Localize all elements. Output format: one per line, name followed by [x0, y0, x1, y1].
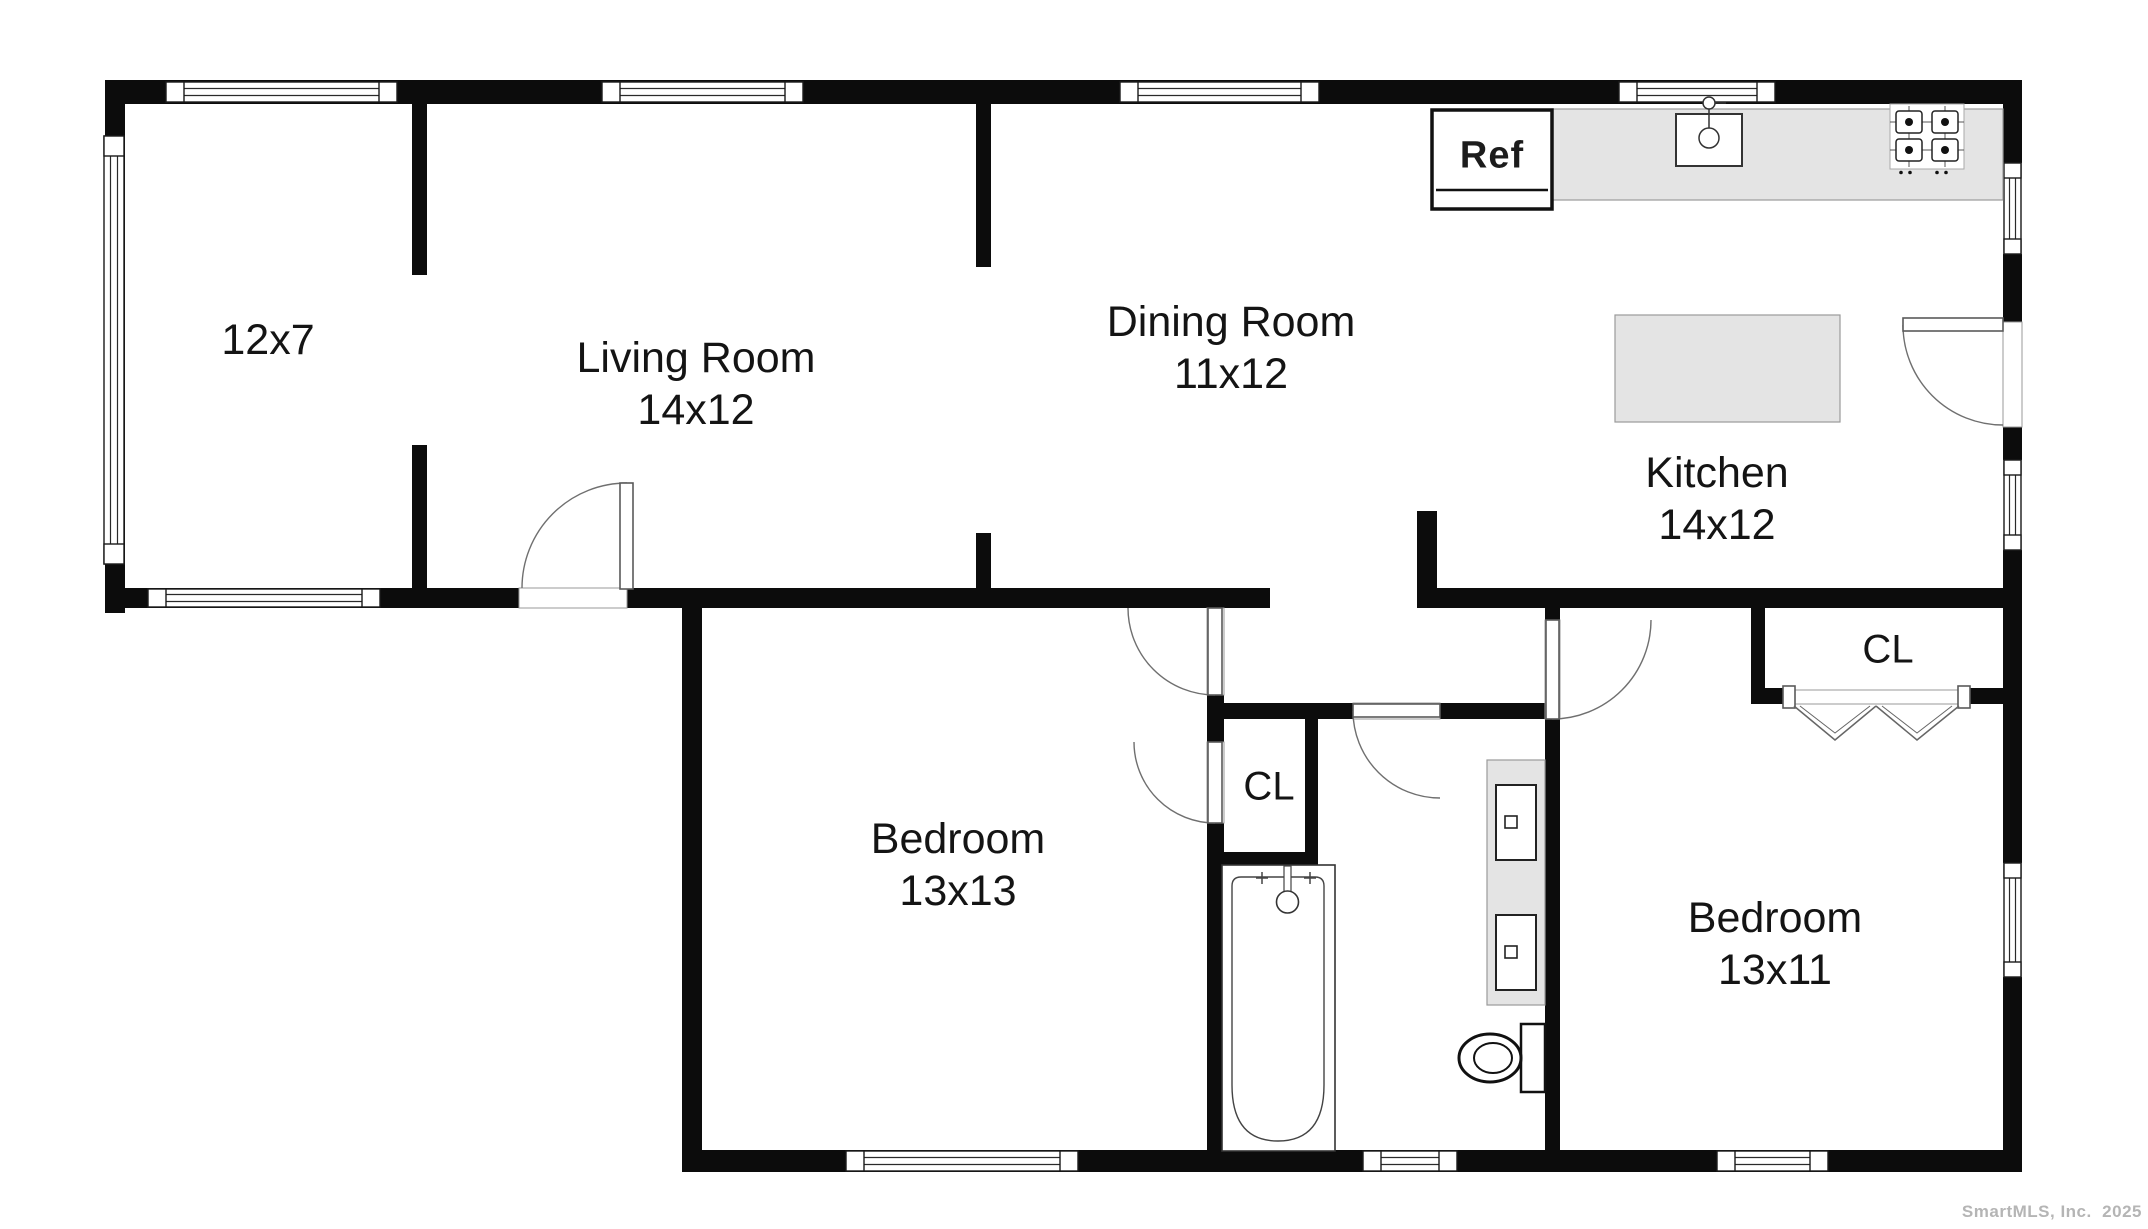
kitchen-island: [1615, 315, 1840, 422]
closet-label: CL: [1243, 765, 1294, 810]
wall-hall-south: [1440, 703, 1560, 719]
room-label-living-room: Living Room 14x12: [577, 332, 816, 436]
room-name: Dining Room: [1107, 296, 1356, 348]
room-label-bedroom-13x11: Bedroom 13x11: [1688, 892, 1862, 996]
bathroom-fixtures: [1222, 760, 1545, 1151]
room-label-12x7: 12x7: [221, 314, 314, 366]
window: [1717, 1151, 1828, 1171]
exterior-wall-right: [2003, 550, 2022, 863]
exterior-wall-right: [2003, 80, 2022, 163]
cooktop-icon: [1890, 104, 1964, 174]
window: [104, 136, 124, 564]
room-label-dining-room: Dining Room 11x12: [1107, 296, 1356, 400]
vanity-double-sink-icon: [1487, 760, 1545, 1005]
exterior-wall-right: [2003, 427, 2022, 460]
partition-living-dining-lower: [976, 533, 991, 608]
wall-closet1-right: [1305, 719, 1318, 867]
wall-bedroom2-west: [1545, 608, 1560, 620]
exterior-wall-right: [2003, 977, 2022, 1172]
window: [148, 589, 380, 607]
room-label-kitchen: Kitchen 14x12: [1645, 447, 1788, 551]
floor-plan-drawing: [0, 0, 2148, 1229]
room-dims: 13x11: [1688, 944, 1862, 996]
window: [846, 1151, 1078, 1171]
window: [2004, 460, 2021, 550]
room-dims: 14x12: [1645, 499, 1788, 551]
window: [2004, 863, 2021, 977]
closet1-door: [1134, 742, 1224, 823]
closet-label: CL: [1862, 628, 1913, 673]
bathroom-door: [1353, 703, 1440, 798]
bedroom2-door: [1545, 620, 1651, 719]
wall-hall-south: [1210, 703, 1353, 719]
partition-12x7-living-upper: [412, 100, 427, 275]
room-dims: 14x12: [577, 384, 816, 436]
wall-mid-right: [1417, 588, 2003, 608]
exterior-wall-lower-left: [682, 588, 702, 1172]
walls: [105, 80, 2022, 1172]
floor-plan: 12x7 Living Room 14x12 Dining Room 11x12…: [0, 0, 2148, 1229]
room-name: Living Room: [577, 332, 816, 384]
window: [1363, 1151, 1457, 1171]
room-dims: 13x13: [871, 865, 1045, 917]
window: [166, 82, 397, 102]
toilet-icon: [1459, 1024, 1545, 1092]
room-name: Bedroom: [1688, 892, 1862, 944]
exterior-wall-right: [2003, 254, 2022, 322]
window: [1619, 82, 1775, 102]
wall-bedroom2-west: [1545, 719, 1560, 1172]
window: [1120, 82, 1319, 102]
room-dims: 11x12: [1107, 348, 1356, 400]
kitchen-sink-icon: [1676, 97, 1742, 166]
kitchen-entry-door: [1903, 318, 2022, 427]
front-door: [519, 483, 633, 608]
refrigerator-label: Ref: [1460, 135, 1524, 178]
room-name: Bedroom: [871, 813, 1045, 865]
bathtub-icon: [1222, 865, 1335, 1151]
partition-12x7-living-lower: [412, 445, 427, 608]
room-label-bedroom-13x13: Bedroom 13x13: [871, 813, 1045, 917]
wall-kitchen-stub: [1417, 511, 1437, 608]
room-name: Kitchen: [1645, 447, 1788, 499]
window: [2004, 163, 2021, 254]
wall-closet2-west: [1751, 588, 1765, 704]
bifold-closet-doors-icon: [1783, 686, 1970, 740]
window: [602, 82, 803, 102]
room-dims: 12x7: [221, 316, 314, 364]
bedroom1-door: [1128, 608, 1224, 695]
wall-mid-center: [627, 588, 1270, 608]
watermark: SmartMLS, Inc. 2025: [1962, 1202, 2142, 1222]
partition-living-dining-upper: [976, 100, 991, 267]
windows: [104, 82, 2021, 1171]
